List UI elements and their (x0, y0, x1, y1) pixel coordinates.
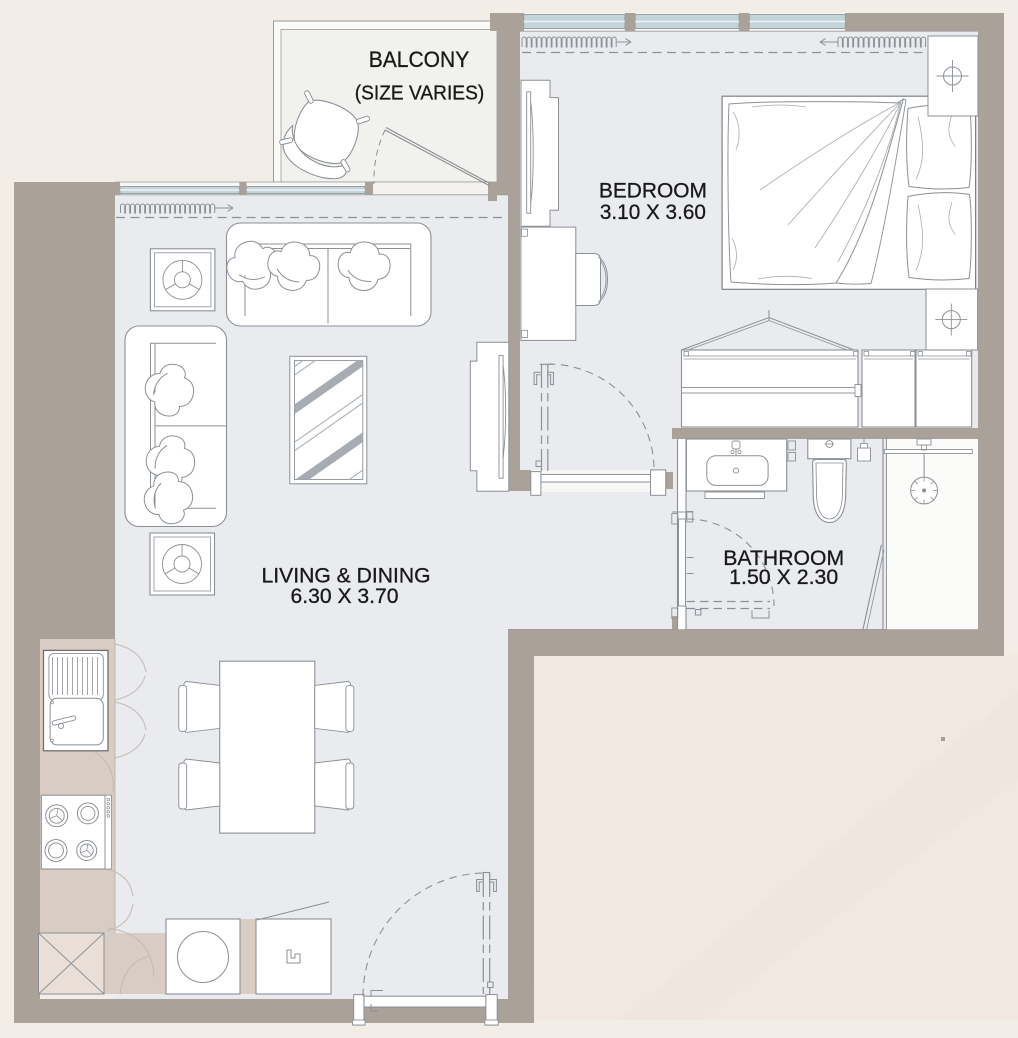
svg-text:BEDROOM: BEDROOM (599, 180, 707, 203)
svg-text:(SIZE VARIES): (SIZE VARIES) (355, 83, 485, 105)
svg-text:LIVING & DINING: LIVING & DINING (262, 564, 431, 587)
svg-text:6.30 X 3.70: 6.30 X 3.70 (291, 585, 399, 608)
svg-text:3.10 X 3.60: 3.10 X 3.60 (600, 201, 706, 224)
svg-text:1.50 X 2.30: 1.50 X 2.30 (729, 566, 838, 589)
svg-text:BALCONY: BALCONY (369, 47, 470, 72)
